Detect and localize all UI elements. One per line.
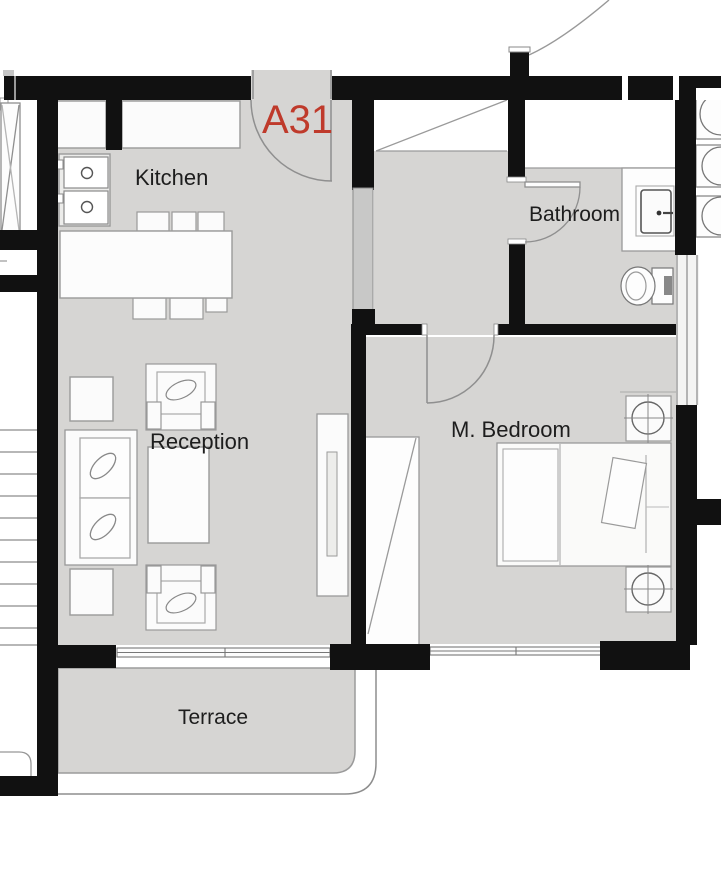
svg-text:Terrace: Terrace [178, 706, 248, 729]
svg-text:Reception: Reception [150, 429, 249, 454]
svg-text:Kitchen: Kitchen [135, 165, 208, 190]
svg-text:Bathroom: Bathroom [529, 203, 620, 226]
svg-text:A31: A31 [262, 98, 333, 142]
svg-text:M. Bedroom: M. Bedroom [451, 417, 571, 442]
